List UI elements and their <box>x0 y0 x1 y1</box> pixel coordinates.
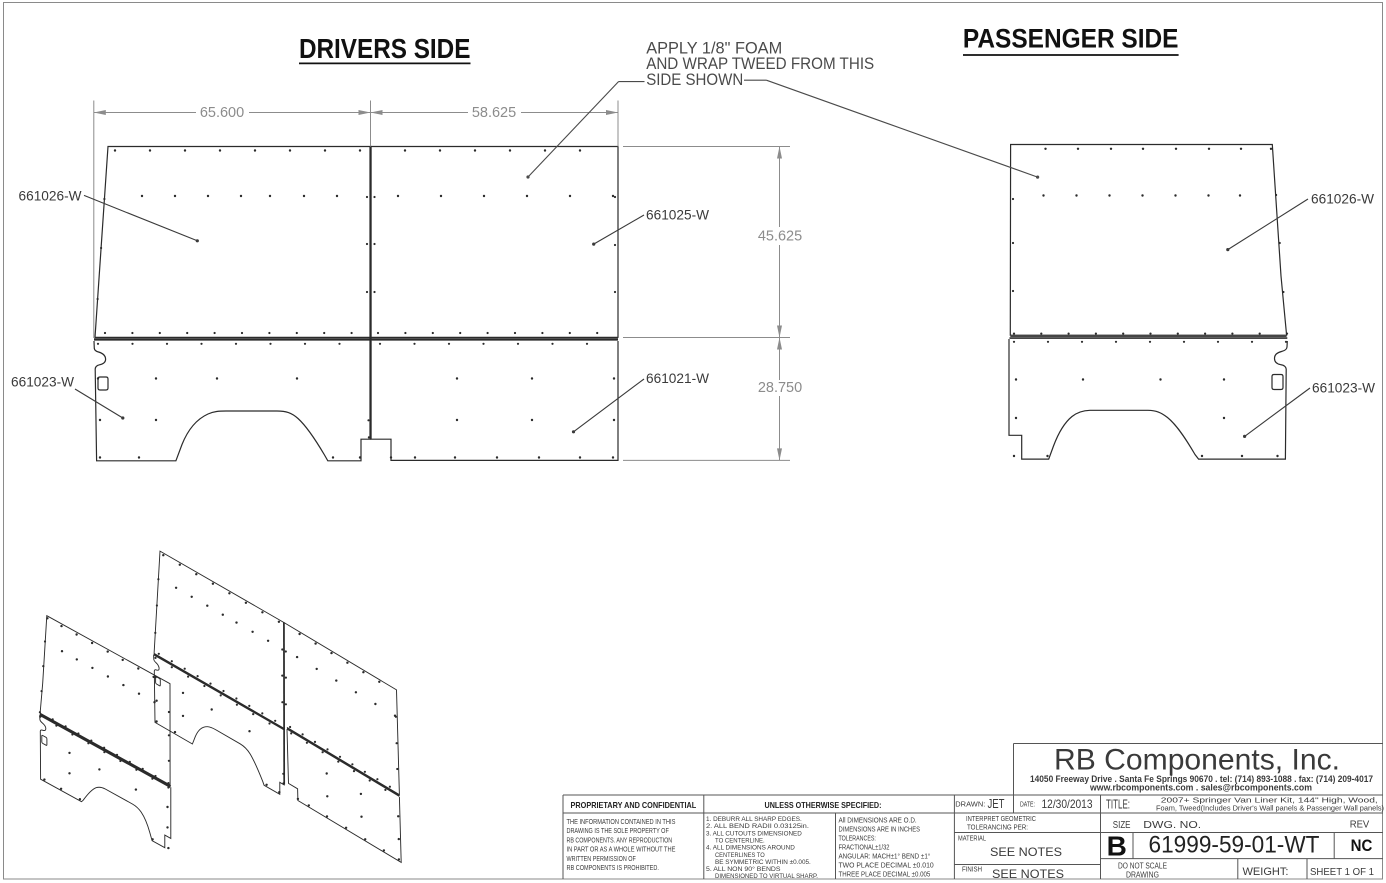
svg-text:2. ALL BEND RADII 0.03125in.: 2. ALL BEND RADII 0.03125in. <box>706 823 809 830</box>
svg-text:JET: JET <box>988 797 1005 811</box>
svg-text:TOLERANCING PER:: TOLERANCING PER: <box>967 824 1028 831</box>
svg-text:THREE PLACE DECIMAL ±0.005: THREE PLACE DECIMAL ±0.005 <box>839 870 931 879</box>
svg-text:61999-59-01-WT: 61999-59-01-WT <box>1149 831 1320 858</box>
svg-text:5. ALL NON 90° BENDS: 5. ALL NON 90° BENDS <box>706 865 781 873</box>
svg-text:THE INFORMATION CONTAINED IN T: THE INFORMATION CONTAINED IN THIS <box>567 817 676 826</box>
svg-text:58.625: 58.625 <box>472 105 516 121</box>
svg-text:INTERPRET GEOMETRIC: INTERPRET GEOMETRIC <box>966 816 1036 823</box>
svg-text:1. DEBURR ALL SHARP EDGES.: 1. DEBURR ALL SHARP EDGES. <box>706 816 802 823</box>
svg-text:BE SYMMETRIC WITHIN ±0.005.: BE SYMMETRIC WITHIN ±0.005. <box>715 859 811 866</box>
svg-text:DRAWING IS THE SOLE PROPERTY O: DRAWING IS THE SOLE PROPERTY OF <box>567 826 670 835</box>
svg-text:DATE:: DATE: <box>1020 802 1035 809</box>
svg-text:SIZE: SIZE <box>1113 820 1131 831</box>
svg-text:661023-W: 661023-W <box>1312 379 1376 395</box>
svg-text:DIMENSIONS ARE IN INCHES: DIMENSIONS ARE IN INCHES <box>839 825 921 834</box>
svg-text:661026-W: 661026-W <box>19 188 83 204</box>
svg-text:WRITTEN PERMISSION OF: WRITTEN PERMISSION OF <box>567 854 637 863</box>
svg-text:TWO PLACE DECIMAL ±0.010: TWO PLACE DECIMAL ±0.010 <box>839 861 934 870</box>
svg-text:REV: REV <box>1350 819 1370 830</box>
svg-text:DWG. NO.: DWG. NO. <box>1143 820 1201 831</box>
svg-text:PROPRIETARY AND CONFIDENTIAL: PROPRIETARY AND CONFIDENTIAL <box>571 800 697 810</box>
svg-text:MATERIAL: MATERIAL <box>958 836 986 843</box>
svg-text:12/30/2013: 12/30/2013 <box>1042 797 1093 811</box>
svg-text:2007+ Springer Van Liner Kit,: 2007+ Springer Van Liner Kit, 144" High,… <box>1161 798 1378 805</box>
svg-text:www.rbcomponents.com . sales@r: www.rbcomponents.com . sales@rbcomponent… <box>1089 783 1312 793</box>
svg-text:RB COMPONENTS IS PROHIBITED.: RB COMPONENTS IS PROHIBITED. <box>567 863 659 872</box>
svg-text:NC: NC <box>1351 836 1373 855</box>
svg-text:28.750: 28.750 <box>758 380 802 396</box>
svg-text:RB Components, Inc.: RB Components, Inc. <box>1054 744 1340 777</box>
svg-text:PASSENGER SIDE: PASSENGER SIDE <box>963 24 1179 54</box>
svg-text:DO NOT SCALE: DO NOT SCALE <box>1118 862 1167 871</box>
svg-text:661023-W: 661023-W <box>11 374 75 390</box>
svg-text:TO CENTERLINE.: TO CENTERLINE. <box>715 837 765 844</box>
svg-text:65.600: 65.600 <box>200 105 244 121</box>
svg-text:SEE NOTES: SEE NOTES <box>992 869 1064 881</box>
svg-text:FRACTIONAL±1/32: FRACTIONAL±1/32 <box>839 843 890 852</box>
svg-text:SEE NOTES: SEE NOTES <box>990 847 1062 859</box>
svg-text:DRIVERS SIDE: DRIVERS SIDE <box>299 33 471 64</box>
svg-text:SIDE SHOWN: SIDE SHOWN <box>646 70 743 89</box>
svg-text:IN PART OR AS A WHOLE WITHOUT: IN PART OR AS A WHOLE WITHOUT THE <box>567 845 676 854</box>
svg-text:TOLERANCES:: TOLERANCES: <box>839 834 876 843</box>
svg-text:All DIMENSIONS ARE O.D.: All DIMENSIONS ARE O.D. <box>839 816 917 825</box>
svg-text:DRAWING: DRAWING <box>1126 871 1159 880</box>
svg-text:DRAWN:: DRAWN: <box>955 802 985 809</box>
svg-text:CENTERLINES TO: CENTERLINES TO <box>715 852 765 859</box>
svg-text:FINISH: FINISH <box>962 867 982 874</box>
svg-text:661025-W: 661025-W <box>646 207 710 223</box>
svg-text:661026-W: 661026-W <box>1311 190 1375 206</box>
svg-text:DIMENSIONED TO VIRTUAL SHARP.: DIMENSIONED TO VIRTUAL SHARP. <box>715 873 818 880</box>
svg-text:WEIGHT:: WEIGHT: <box>1243 866 1289 878</box>
svg-text:RB COMPONENTS. ANY REPRODUCTI: RB COMPONENTS. ANY REPRODUCTION <box>567 835 673 844</box>
svg-text:4. ALL DIMENSIONS AROUND: 4. ALL DIMENSIONS AROUND <box>706 845 795 852</box>
svg-text:SHEET 1 OF 1: SHEET 1 OF 1 <box>1310 866 1374 878</box>
svg-text:B: B <box>1107 830 1127 861</box>
svg-text:UNLESS OTHERWISE SPECIFIED:: UNLESS OTHERWISE SPECIFIED: <box>765 800 882 810</box>
svg-text:TITLE:: TITLE: <box>1106 797 1130 811</box>
svg-text:45.625: 45.625 <box>758 229 802 245</box>
svg-text:ANGULAR: MACH±1° BEND ±1°: ANGULAR: MACH±1° BEND ±1° <box>839 852 931 861</box>
svg-text:Foam, Tweed(Includes Driver's: Foam, Tweed(Includes Driver's Wall panel… <box>1156 805 1384 812</box>
svg-text:3. ALL CUTOUTS DIMENSIONED: 3. ALL CUTOUTS DIMENSIONED <box>706 830 802 837</box>
svg-text:661021-W: 661021-W <box>646 370 710 386</box>
